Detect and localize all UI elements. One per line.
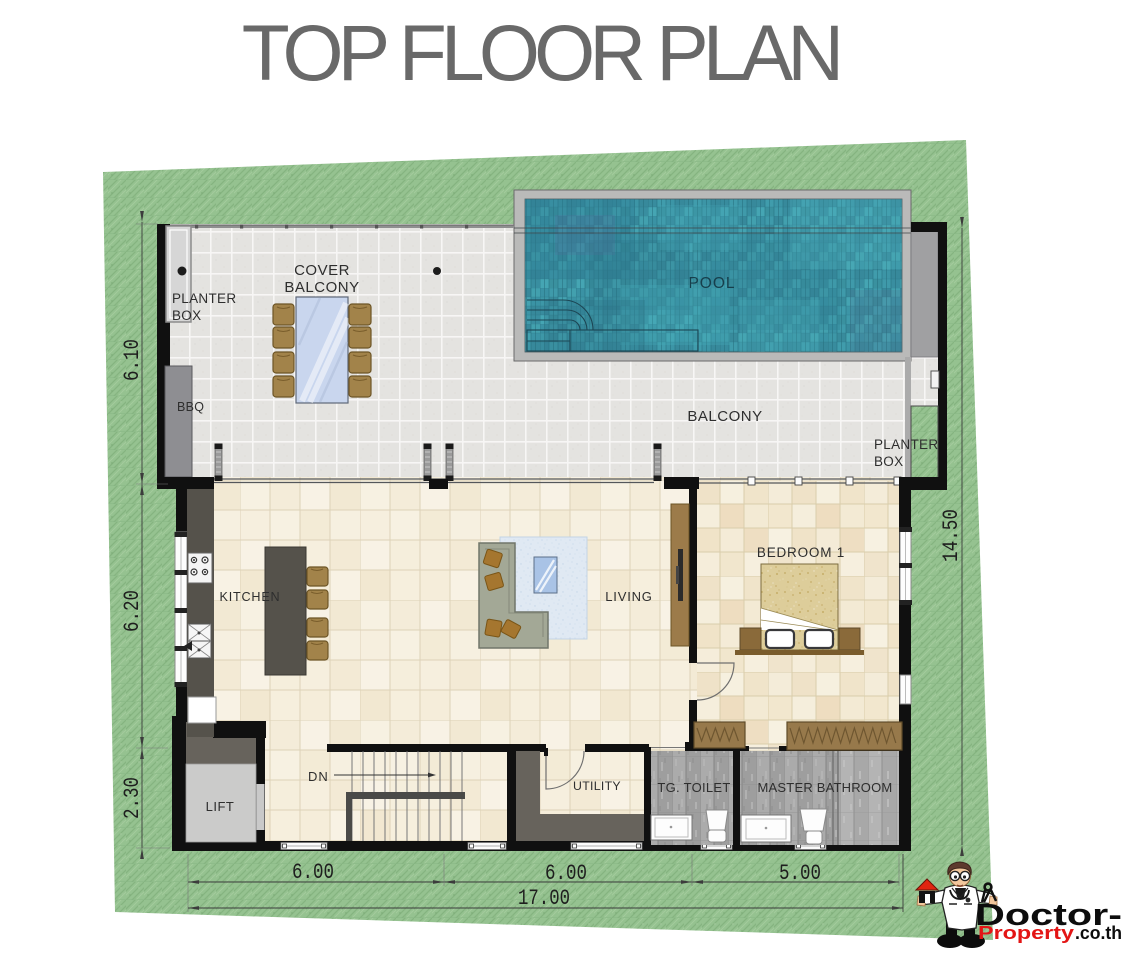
svg-text:KITCHEN: KITCHEN bbox=[220, 590, 281, 604]
svg-text:COVER: COVER bbox=[294, 262, 350, 279]
svg-text:.co.th: .co.th bbox=[1075, 923, 1122, 943]
svg-text:BALCONY: BALCONY bbox=[687, 408, 762, 425]
svg-text:DN: DN bbox=[308, 769, 329, 784]
svg-text:BOX: BOX bbox=[172, 308, 201, 323]
svg-text:MASTER BATHROOM: MASTER BATHROOM bbox=[758, 780, 893, 795]
svg-text:17.00: 17.00 bbox=[518, 886, 570, 911]
svg-text:6.10: 6.10 bbox=[120, 339, 145, 381]
svg-text:UTILITY: UTILITY bbox=[573, 779, 621, 793]
svg-text:LIVING: LIVING bbox=[605, 589, 652, 604]
svg-text:6.20: 6.20 bbox=[120, 590, 145, 632]
svg-text:5.00: 5.00 bbox=[779, 861, 821, 886]
svg-text:LIFT: LIFT bbox=[206, 799, 235, 814]
svg-text:PLANTER: PLANTER bbox=[172, 291, 236, 306]
svg-text:6.00: 6.00 bbox=[545, 861, 587, 886]
svg-text:2.30: 2.30 bbox=[120, 777, 145, 819]
svg-text:14.50: 14.50 bbox=[939, 509, 964, 562]
svg-text:Property: Property bbox=[978, 923, 1074, 943]
svg-text:6.00: 6.00 bbox=[292, 860, 334, 885]
svg-text:POOL: POOL bbox=[688, 275, 735, 292]
svg-text:BBQ: BBQ bbox=[177, 400, 204, 414]
svg-text:BOX: BOX bbox=[874, 454, 903, 469]
svg-text:BEDROOM 1: BEDROOM 1 bbox=[757, 545, 845, 560]
svg-text:PLANTER: PLANTER bbox=[874, 437, 938, 452]
svg-text:BALCONY: BALCONY bbox=[284, 279, 359, 296]
svg-text:TG. TOILET: TG. TOILET bbox=[657, 780, 730, 795]
svg-text:TOP FLOOR PLAN: TOP FLOOR PLAN bbox=[242, 9, 839, 97]
